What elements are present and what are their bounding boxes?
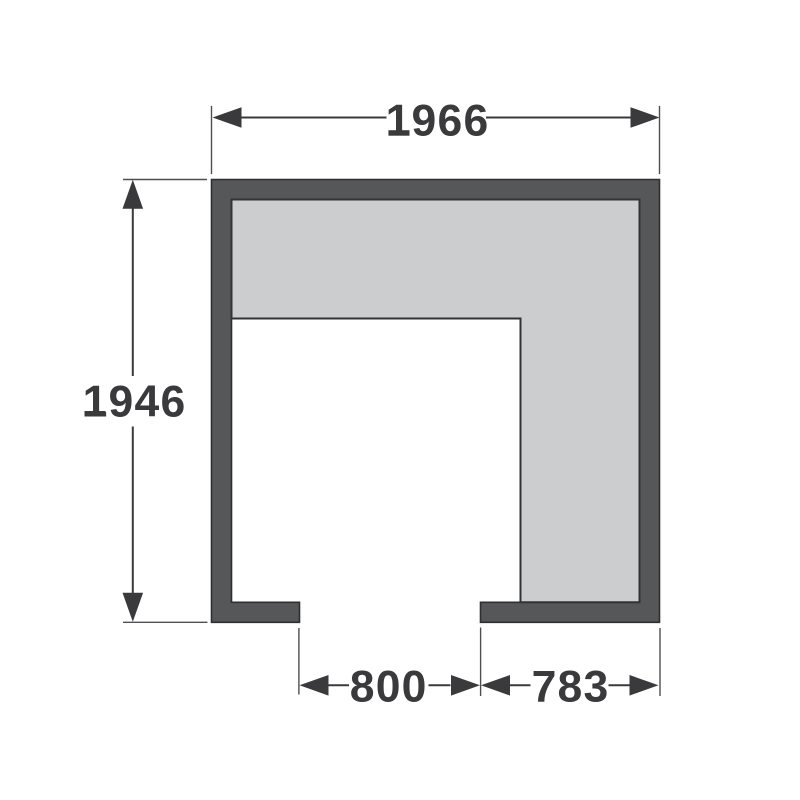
- svg-text:800: 800: [350, 663, 428, 712]
- svg-text:1946: 1946: [83, 378, 187, 427]
- svg-text:1966: 1966: [386, 97, 490, 146]
- svg-text:783: 783: [532, 663, 610, 712]
